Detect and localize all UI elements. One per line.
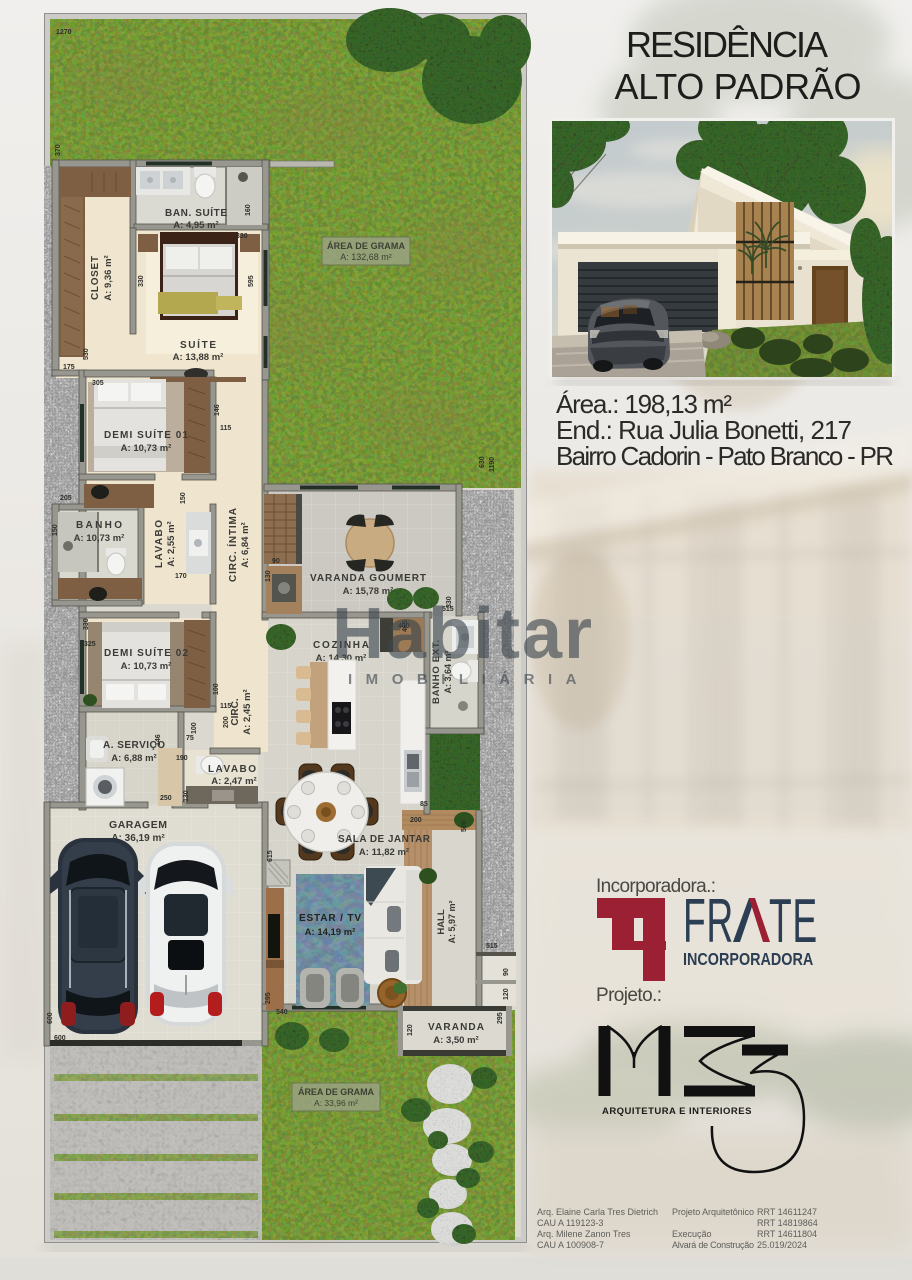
svg-text:130: 130 — [265, 570, 272, 582]
svg-text:115: 115 — [220, 425, 231, 432]
svg-text:Bairro Cadorin - Pato Branco -: Bairro Cadorin - Pato Branco - PR — [556, 441, 894, 471]
svg-text:A: 2,55 m²: A: 2,55 m² — [166, 521, 177, 566]
svg-text:LAVABO: LAVABO — [208, 764, 256, 775]
svg-text:595: 595 — [248, 275, 255, 287]
svg-text:SUÍTE: SUÍTE — [180, 338, 216, 351]
svg-text:1190: 1190 — [489, 457, 496, 472]
svg-text:120: 120 — [407, 1024, 414, 1036]
svg-text:170: 170 — [175, 573, 187, 580]
svg-text:SALA DE JANTAR: SALA DE JANTAR — [338, 834, 431, 845]
svg-text:370: 370 — [55, 144, 62, 156]
svg-text:A: 13,88 m²: A: 13,88 m² — [173, 352, 224, 363]
svg-text:A: 6,84 m²: A: 6,84 m² — [240, 522, 251, 567]
svg-text:120: 120 — [503, 988, 510, 1000]
svg-text:A: 2,45 m²: A: 2,45 m² — [242, 689, 253, 734]
svg-text:325: 325 — [84, 641, 96, 648]
svg-text:540: 540 — [276, 1009, 288, 1016]
svg-text:100: 100 — [213, 683, 220, 695]
svg-text:A: 14,19 m²: A: 14,19 m² — [305, 927, 356, 938]
svg-text:FR: FR — [683, 886, 734, 955]
svg-text:90: 90 — [503, 968, 510, 976]
svg-text:205: 205 — [60, 495, 72, 502]
svg-text:VARANDA GOUMERT: VARANDA GOUMERT — [310, 573, 426, 584]
svg-text:A: 33,96 m²: A: 33,96 m² — [314, 1098, 358, 1108]
svg-text:ÁREA DE GRAMA: ÁREA DE GRAMA — [298, 1087, 375, 1097]
svg-text:DEMI SUÍTE 01: DEMI SUÍTE 01 — [104, 428, 188, 441]
svg-text:A: 3,50 m²: A: 3,50 m² — [433, 1035, 478, 1046]
svg-text:ÁREA DE GRAMA: ÁREA DE GRAMA — [327, 241, 406, 251]
svg-text:250: 250 — [160, 795, 172, 802]
svg-text:85: 85 — [420, 801, 428, 808]
svg-text:HALL: HALL — [436, 909, 447, 935]
svg-text:160: 160 — [245, 204, 252, 216]
svg-text:A: 10,73 m²: A: 10,73 m² — [121, 661, 172, 672]
svg-text:200: 200 — [223, 716, 230, 728]
svg-text:75: 75 — [186, 735, 194, 742]
svg-text:146: 146 — [214, 404, 221, 416]
svg-text:100: 100 — [191, 722, 198, 734]
svg-text:RRT 14611247: RRT 14611247 — [757, 1207, 817, 1217]
svg-text:330: 330 — [83, 618, 90, 630]
svg-text:RRT 14819864: RRT 14819864 — [757, 1218, 818, 1228]
svg-text:DEMI SUÍTE 02: DEMI SUÍTE 02 — [104, 646, 188, 659]
svg-text:615: 615 — [267, 850, 274, 862]
svg-text:175: 175 — [63, 364, 75, 371]
svg-text:LAVABO: LAVABO — [154, 520, 165, 568]
svg-text:Arq. Elaine Carla Tres Dietric: Arq. Elaine Carla Tres Dietrich — [537, 1207, 658, 1217]
svg-text:IMOBILIÁRIA: IMOBILIÁRIA — [348, 671, 584, 688]
svg-text:600: 600 — [47, 1012, 54, 1024]
svg-text:TE: TE — [769, 886, 818, 955]
svg-text:Projeto.:: Projeto.: — [596, 985, 662, 1006]
svg-text:190: 190 — [176, 755, 188, 762]
svg-text:A: 5,97 m²: A: 5,97 m² — [447, 900, 457, 943]
svg-text:Alvará de Construção: Alvará de Construção — [672, 1240, 754, 1250]
svg-text:BANHO: BANHO — [76, 520, 122, 531]
svg-text:ESTAR / TV: ESTAR / TV — [299, 913, 361, 924]
svg-text:Arq. Milene Zanon Tres: Arq. Milene Zanon Tres — [537, 1229, 631, 1239]
svg-text:295: 295 — [497, 1012, 504, 1024]
svg-text:146: 146 — [155, 734, 162, 746]
svg-text:ARQUITETURA E INTERIORES: ARQUITETURA E INTERIORES — [602, 1106, 754, 1117]
svg-text:Habitar: Habitar — [332, 594, 594, 674]
svg-text:600: 600 — [54, 1035, 66, 1042]
svg-text:CAU A 119123-3: CAU A 119123-3 — [537, 1218, 603, 1228]
svg-text:BAN. SUÍTE: BAN. SUÍTE — [165, 206, 227, 219]
svg-text:530: 530 — [83, 348, 90, 360]
svg-text:630: 630 — [479, 456, 486, 468]
svg-text:330: 330 — [138, 275, 145, 287]
svg-text:A: 10,73 m²: A: 10,73 m² — [121, 443, 172, 454]
svg-text:305: 305 — [92, 380, 104, 387]
svg-text:ALTO PADRÃO: ALTO PADRÃO — [615, 66, 862, 107]
svg-text:VARANDA: VARANDA — [428, 1022, 484, 1033]
svg-text:25.019/2024: 25.019/2024 — [757, 1240, 807, 1250]
svg-text:1270: 1270 — [56, 29, 72, 36]
svg-text:A: 6,88 m²: A: 6,88 m² — [111, 753, 156, 764]
svg-text:A: 132,68 m²: A: 132,68 m² — [340, 252, 392, 262]
svg-text:A: 2,47 m²: A: 2,47 m² — [211, 776, 256, 787]
svg-text:90: 90 — [272, 558, 280, 565]
svg-text:RESIDÊNCIA: RESIDÊNCIA — [626, 24, 828, 65]
svg-text:Execução: Execução — [672, 1229, 712, 1239]
svg-text:500: 500 — [461, 820, 468, 832]
svg-text:130: 130 — [183, 790, 190, 802]
svg-text:A: 10,73 m²: A: 10,73 m² — [74, 533, 125, 544]
svg-text:115: 115 — [220, 703, 231, 710]
svg-text:295: 295 — [265, 992, 272, 1004]
svg-text:330: 330 — [236, 233, 248, 240]
svg-text:A: 4,95 m²: A: 4,95 m² — [173, 220, 218, 231]
svg-text:200: 200 — [410, 817, 422, 824]
svg-text:CAU A 100908-7: CAU A 100908-7 — [537, 1240, 604, 1250]
svg-text:150: 150 — [52, 524, 59, 536]
svg-text:CIRC. ÍNTIMA: CIRC. ÍNTIMA — [226, 508, 239, 582]
svg-text:150: 150 — [180, 492, 187, 504]
svg-text:CIRC.: CIRC. — [230, 698, 241, 725]
svg-text:A: 9,36 m²: A: 9,36 m² — [103, 255, 114, 300]
svg-text:Projeto Arquitetônico: Projeto Arquitetônico — [672, 1207, 754, 1217]
svg-text:A: 11,82 m²: A: 11,82 m² — [359, 847, 409, 858]
svg-text:CLOSET: CLOSET — [90, 256, 101, 300]
svg-text:INCORPORADORA: INCORPORADORA — [683, 950, 813, 970]
svg-text:515: 515 — [486, 943, 498, 950]
svg-text:GARAGEM: GARAGEM — [109, 819, 167, 831]
svg-text:RRT 14611804: RRT 14611804 — [757, 1229, 817, 1239]
